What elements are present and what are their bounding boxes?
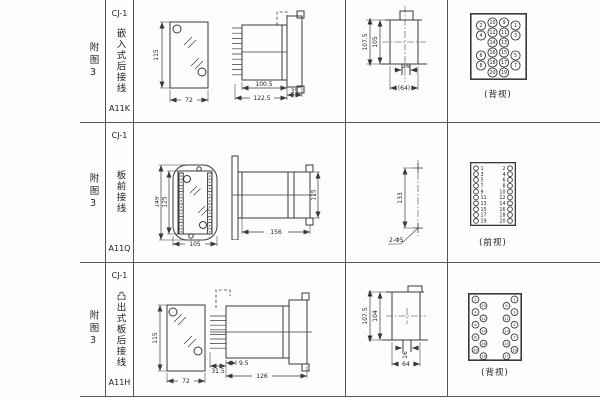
terminal-number: 11 xyxy=(504,316,509,321)
mount-type-label: 板前接线 xyxy=(113,170,127,214)
relay-front-outline xyxy=(170,22,208,88)
dim-length-label: 156 xyxy=(270,229,282,236)
terminal-number: 11 xyxy=(481,195,487,201)
model-code: A11K xyxy=(109,104,130,113)
terminal-number: 4 xyxy=(479,33,482,39)
terminal-number: 15 xyxy=(504,341,509,346)
terminal-number: 9 xyxy=(505,303,508,308)
terminal-number: 13 xyxy=(504,328,509,333)
mount-type-label: 嵌入式后接线 xyxy=(113,28,127,94)
terminal-number: 12 xyxy=(481,316,486,321)
terminal-number: 3 xyxy=(514,33,517,39)
terminal-pin xyxy=(474,183,479,188)
terminal-number: 18 xyxy=(499,213,505,219)
terminal-number: 8 xyxy=(502,184,505,190)
fig-label: 附图3 xyxy=(86,310,100,349)
terminal-view-caption: (前视) xyxy=(453,236,533,248)
dim-pin-label: 31.5 xyxy=(211,368,225,375)
dimension-lines: 115 72 xyxy=(152,305,205,385)
side-view-a11q: 115 156 xyxy=(228,150,324,240)
terminal-number: 13 xyxy=(501,40,507,46)
terminal-number: 15 xyxy=(501,50,507,56)
terminal-number: 18 xyxy=(481,354,486,359)
terminal-number: 20 xyxy=(489,70,495,76)
terminal-number: 5 xyxy=(514,53,517,59)
terminal-number: 2 xyxy=(474,297,477,302)
terminal-number: 7 xyxy=(513,335,516,340)
terminal-number: 9 xyxy=(481,189,484,195)
terminal-number: 20 xyxy=(499,219,505,225)
dim-total-label: 122.5 xyxy=(253,95,270,102)
model-label: CJ-1 xyxy=(112,271,128,280)
side-view-a11h: 31.5 9.5 126 xyxy=(208,276,320,386)
terminal-number: 9 xyxy=(502,20,505,26)
terminal-block-rear-view: 2104126148162018193115137151917 xyxy=(468,293,522,365)
terminal-number: 16 xyxy=(489,50,495,56)
terminal-number: 1 xyxy=(481,166,484,172)
dim-length-label: 126 xyxy=(256,373,268,380)
terminal-number: 5 xyxy=(513,322,516,327)
terminal-number: 14 xyxy=(489,40,495,46)
model-code: A11H xyxy=(109,378,131,387)
terminal-number: 14 xyxy=(481,328,486,333)
terminal-pin xyxy=(508,172,513,177)
fig-label-cell: 附图3 xyxy=(80,262,105,396)
terminal-number: 6 xyxy=(502,178,505,184)
dim-width-label: 64 xyxy=(402,361,410,368)
dim-height-label: 115 xyxy=(152,332,159,344)
model-code: A11Q xyxy=(109,244,131,253)
dim-width-label: 105 xyxy=(189,241,201,248)
terminal-block-rear-view: 1092112114314131615651817872019 xyxy=(470,13,527,84)
terminal-pin xyxy=(474,195,479,200)
cutout-profile xyxy=(382,286,428,352)
dimension-lines: 107.5 104 16 64 xyxy=(362,290,420,368)
terminal-number: 16 xyxy=(481,341,486,346)
terminal-number: 6 xyxy=(474,322,477,327)
terminal-number: 2 xyxy=(479,23,482,29)
panel-cutout-a11k: 107.5 105 16 (64) xyxy=(356,4,448,118)
terminal-pin xyxy=(508,201,513,206)
grid-line-horizontal xyxy=(80,122,600,123)
dimension-lines: 115 72 xyxy=(153,22,208,104)
dim-height-label: 115 xyxy=(153,49,160,61)
dim-inner-height: 125 xyxy=(162,196,169,208)
fig-label-cell: 附图3 xyxy=(80,122,105,262)
side-view-a11k: 100.5 122.5 35 xyxy=(230,2,334,114)
terminal-pin xyxy=(474,207,479,212)
panel-cutout-a11h: 107.5 104 16 64 xyxy=(358,282,446,390)
terminal-number: 5 xyxy=(481,178,484,184)
dimension-lines: 115 156 xyxy=(242,172,320,236)
terminal-number: 3 xyxy=(481,172,484,178)
terminal-number: 8 xyxy=(479,63,482,69)
relay-front-outline xyxy=(173,165,217,240)
terminal-number: 7 xyxy=(514,63,517,69)
terminal-number: 7 xyxy=(481,184,484,190)
dim-cutout-inner: 105 xyxy=(372,36,379,48)
terminal-pin xyxy=(508,213,513,218)
terminal-number: 1 xyxy=(514,23,517,29)
terminal-pin xyxy=(474,178,479,183)
relay-side-outline xyxy=(210,290,312,371)
terminal-number: 15 xyxy=(481,207,487,213)
terminal-number: 17 xyxy=(501,60,507,66)
front-view-a11k: 115 72 xyxy=(148,8,220,114)
terminal-pin xyxy=(474,219,479,224)
terminal-pin xyxy=(508,178,513,183)
fig-label-cell: 附图3 xyxy=(80,0,105,122)
terminal-number: 2 xyxy=(502,166,505,172)
terminal-pin xyxy=(474,201,479,206)
dimension-lines: 100.5 122.5 35 xyxy=(235,81,302,102)
dim-width-label: (64) xyxy=(398,85,410,92)
front-view-a11q: 149 125 105 xyxy=(155,158,230,250)
dim-slot-label: 16 xyxy=(402,63,410,70)
terminal-view-caption: (背视) xyxy=(455,366,535,378)
dim-offset-label: 9.5 xyxy=(239,360,249,367)
dim-cutout-outer: 107.5 xyxy=(362,307,369,324)
terminal-number: 17 xyxy=(481,213,487,219)
terminal-number: 12 xyxy=(489,30,495,36)
terminal-number: 6 xyxy=(479,53,482,59)
dim-body-label: 100.5 xyxy=(255,81,272,88)
terminal-number: 18 xyxy=(489,60,495,66)
dim-height-label: 115 xyxy=(311,189,318,201)
dimension-lines: 133 2-Φ5 xyxy=(388,168,418,244)
terminal-number: 19 xyxy=(481,219,487,225)
terminal-number: 4 xyxy=(474,309,477,314)
grid-line-vertical xyxy=(133,0,134,397)
terminal-number: 13 xyxy=(481,201,487,207)
terminal-block-front-view: 1234567891011121314151617181920 xyxy=(470,162,516,230)
terminal-number: 20 xyxy=(473,347,478,352)
terminal-number: 1 xyxy=(513,297,516,302)
terminal-number: 17 xyxy=(504,354,509,359)
terminal-pin xyxy=(474,172,479,177)
model-label: CJ-1 xyxy=(112,131,128,140)
drawing-sheet: 附图3 CJ-1 嵌入式后接线 A11K 115 72 xyxy=(0,0,600,400)
grid-line-horizontal xyxy=(80,262,600,263)
terminal-pin xyxy=(508,183,513,188)
terminal-number: 10 xyxy=(499,189,505,195)
grid-line-horizontal xyxy=(80,396,600,397)
terminal-number: 4 xyxy=(502,172,505,178)
terminal-number: 19 xyxy=(512,347,517,352)
terminal-number: 3 xyxy=(513,309,516,314)
terminal-number: 16 xyxy=(499,207,505,213)
relay-side-outline xyxy=(232,156,316,240)
model-cell: CJ-1 凸出式板后接线 A11H xyxy=(106,262,133,396)
dim-width-label: 72 xyxy=(185,97,193,104)
terminal-pin xyxy=(508,207,513,212)
mount-type-label: 凸出式板后接线 xyxy=(113,291,127,368)
dimension-lines: 31.5 9.5 126 xyxy=(210,352,307,380)
dim-hole-distance: 133 xyxy=(397,192,404,204)
grid-line-vertical xyxy=(345,0,346,397)
terminal-pin xyxy=(508,219,513,224)
terminal-view-caption: (背视) xyxy=(458,88,538,100)
terminal-number: 10 xyxy=(481,303,486,308)
model-cell: CJ-1 板前接线 A11Q xyxy=(106,122,133,262)
mounting-holes-a11q: 133 2-Φ5 xyxy=(385,152,440,252)
relay-front-outline xyxy=(167,305,205,371)
model-cell: CJ-1 嵌入式后接线 A11K xyxy=(106,0,133,122)
dim-cutout-outer: 107.5 xyxy=(362,33,369,50)
terminal-pin xyxy=(474,213,479,218)
terminal-number: 19 xyxy=(501,70,507,76)
model-label: CJ-1 xyxy=(112,9,128,18)
fig-label: 附图3 xyxy=(86,42,100,81)
dim-outer-height: 149 xyxy=(155,196,161,208)
terminal-number: 12 xyxy=(499,195,505,201)
dim-flange-label: 35 xyxy=(291,88,299,95)
terminal-pin xyxy=(508,195,513,200)
terminal-pin xyxy=(508,189,513,194)
dim-cutout-inner: 104 xyxy=(372,310,379,322)
terminal-number: 10 xyxy=(489,20,495,26)
fig-label: 附图3 xyxy=(86,173,100,212)
dim-width-label: 72 xyxy=(182,378,190,385)
hole-spec-label: 2-Φ5 xyxy=(389,237,404,244)
terminal-pin xyxy=(474,166,479,171)
centerlines xyxy=(382,6,426,82)
terminal-number: 8 xyxy=(474,335,477,340)
terminal-number: 11 xyxy=(501,30,507,36)
terminal-number: 14 xyxy=(499,201,505,207)
terminal-pin xyxy=(474,189,479,194)
terminal-pin xyxy=(508,166,513,171)
dim-slot-label: 16 xyxy=(402,351,409,359)
